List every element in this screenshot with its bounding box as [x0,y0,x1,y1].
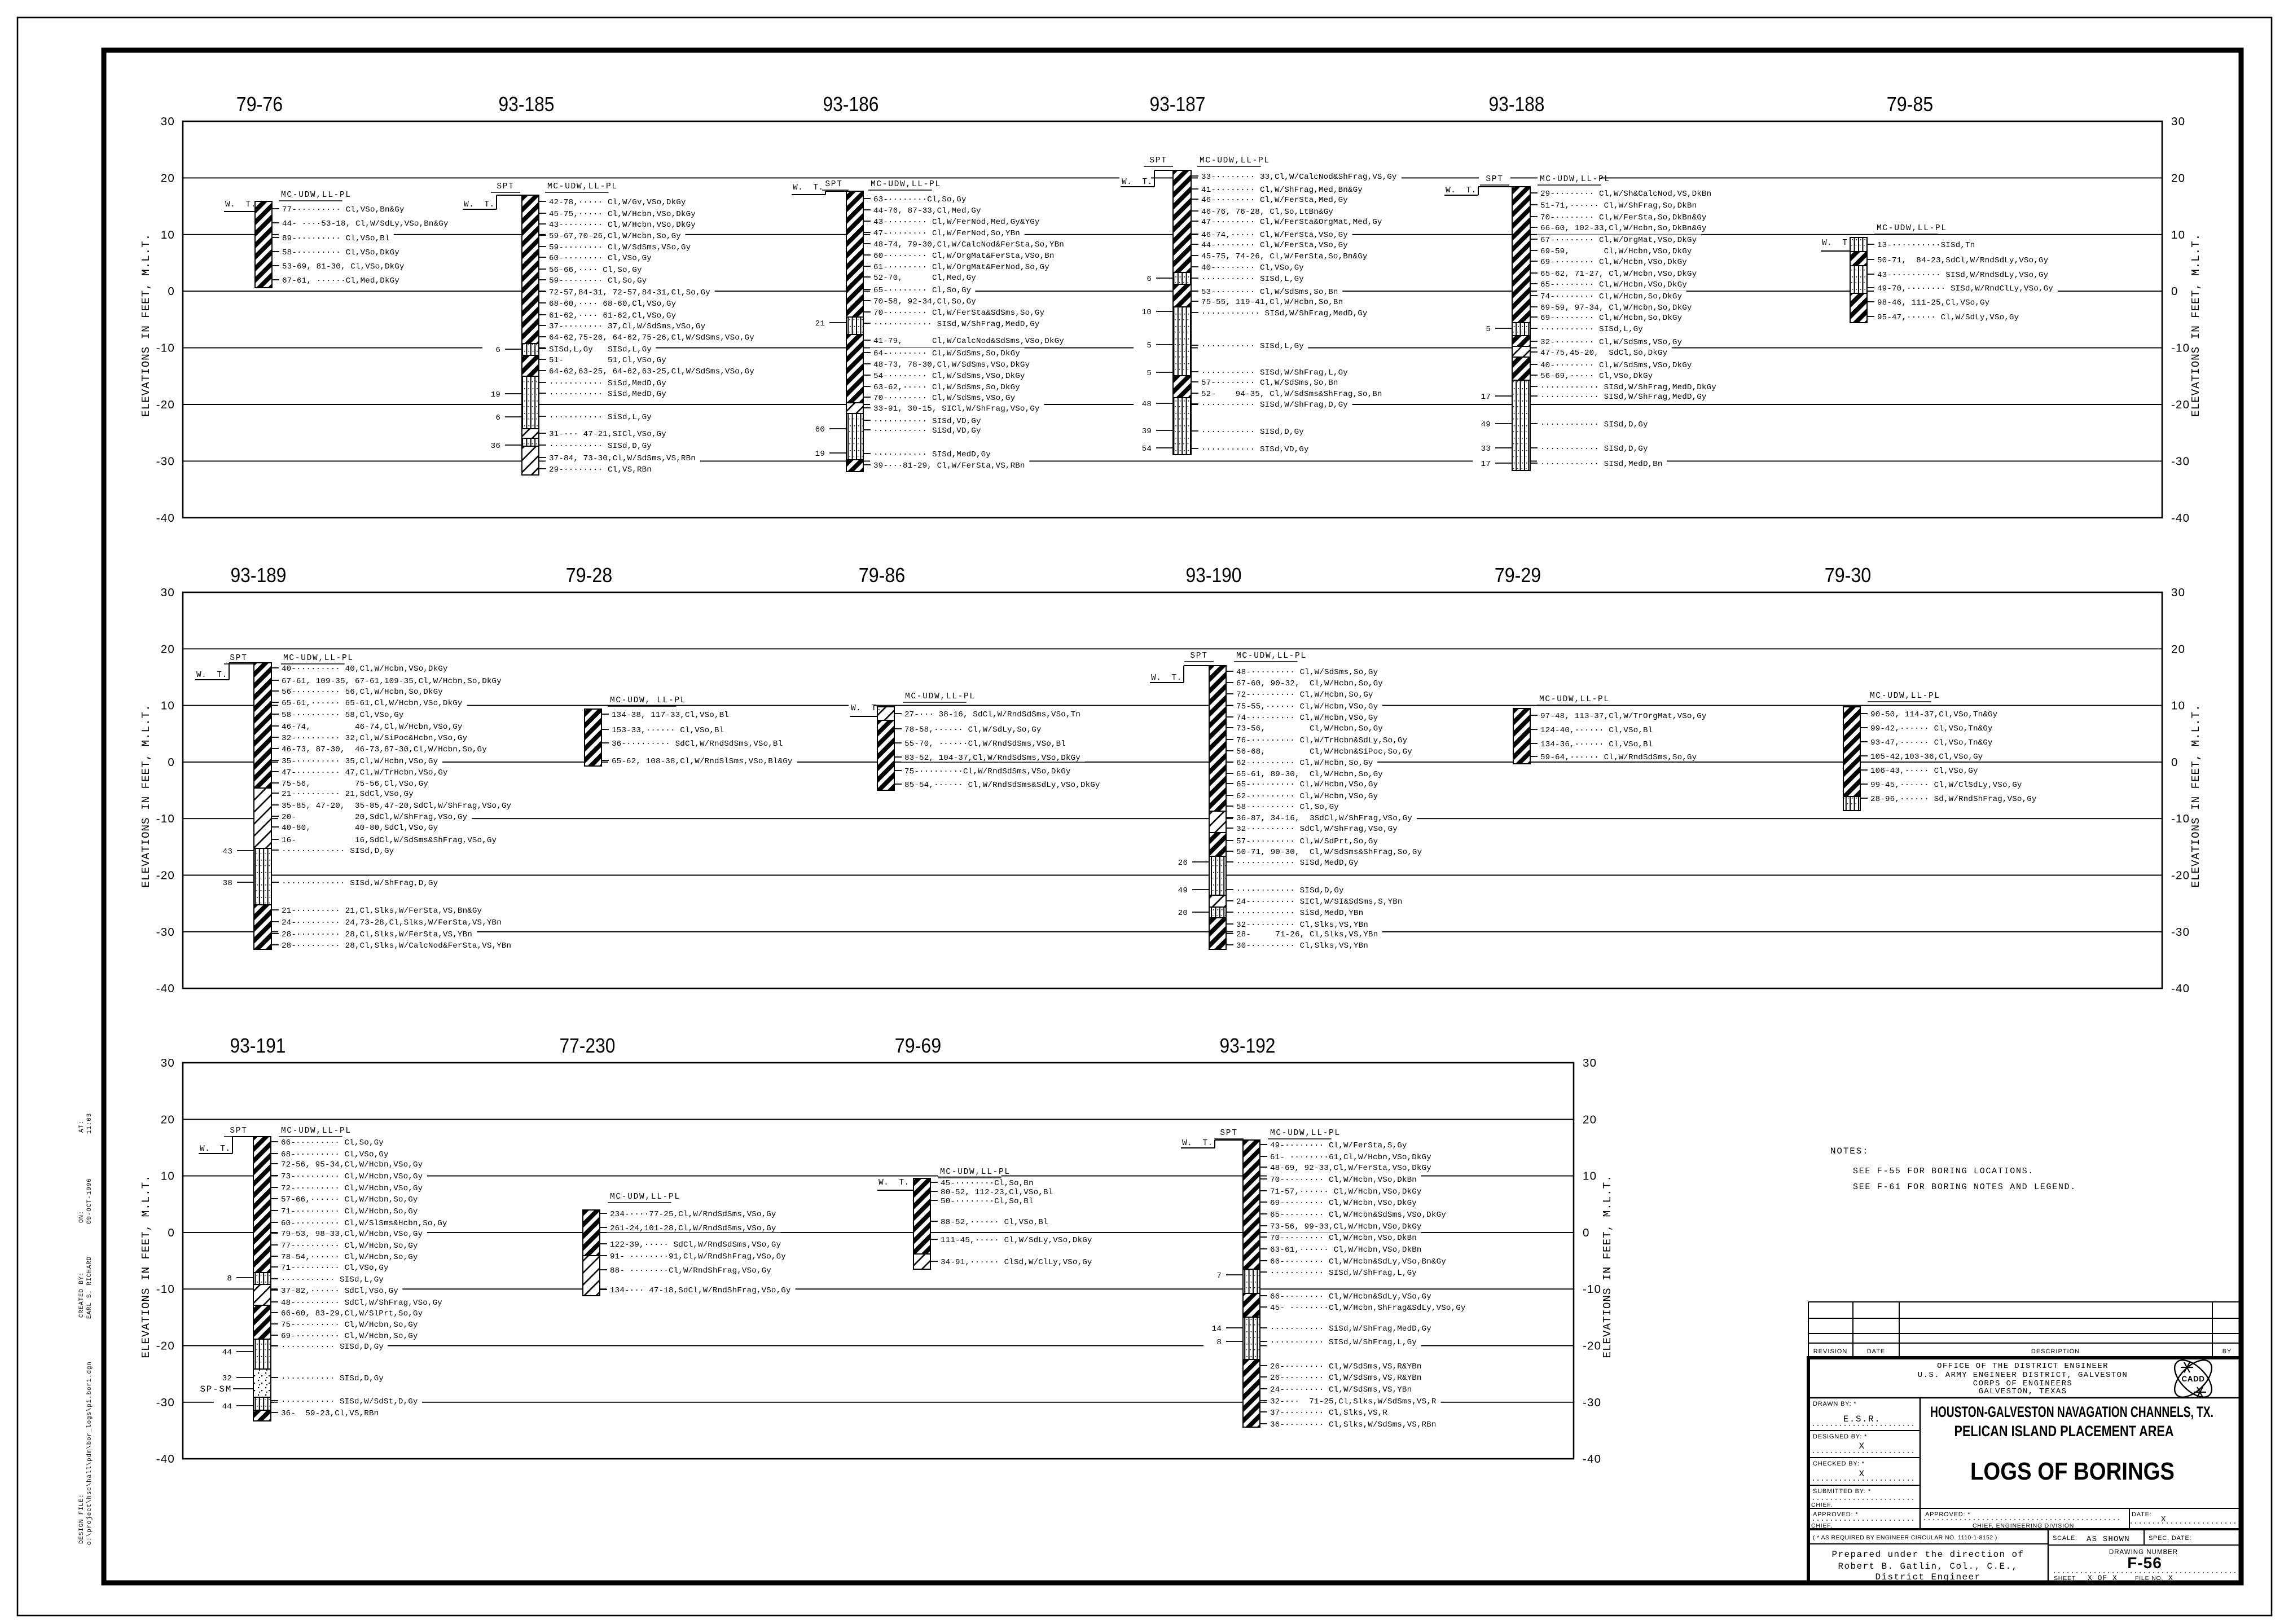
svg-text:-40: -40 [156,1453,175,1465]
svg-text:71-········· Cl,VSo,Gy: 71-········· Cl,VSo,Gy [281,1264,389,1273]
svg-text:············ SISd,D,Gy: ············ SISd,D,Gy [1540,420,1648,429]
svg-text:72-57,84-31, 72-57,84-31,Cl,So: 72-57,84-31, 72-57,84-31,Cl,So,Gy [549,288,710,297]
svg-text:DESIGNED BY: *: DESIGNED BY: * [1813,1433,1867,1440]
svg-text:CHIEF, ENGINEERING DIVISION: CHIEF, ENGINEERING DIVISION [1973,1522,2074,1529]
svg-text:122-39,····· SdCl,W/RndSdSms,V: 122-39,····· SdCl,W/RndSdSms,VSo,Gy [610,1240,781,1249]
svg-text:66-60, 102-33,Cl,W/Hcbn,So,DkB: 66-60, 102-33,Cl,W/Hcbn,So,DkBn&Gy [1540,224,1707,233]
svg-text:············ SISd,W/ShFrag,Med: ············ SISd,W/ShFrag,MedD,Gy [1201,309,1368,318]
svg-text:54-········ Cl,W/SdSms,VSo,DkG: 54-········ Cl,W/SdSms,VSo,DkGy [873,372,1025,381]
svg-text:CHIEF,: CHIEF, [1811,1502,1833,1508]
svg-text:93-185: 93-185 [499,93,555,116]
svg-text:33-········ 33,Cl,W/CalcNod&Sh: 33-········ 33,Cl,W/CalcNod&ShFrag,VS,Gy [1201,173,1397,182]
svg-text:47-75,45-20, SdCl,So,DkGy: 47-75,45-20, SdCl,So,DkGy [1540,349,1668,358]
svg-text:( * AS REQUIRED BY ENGINEER CI: ( * AS REQUIRED BY ENGINEER CIRCULAR NO.… [1813,1534,1997,1541]
svg-text:CHIEF,: CHIEF, [1811,1522,1833,1529]
svg-text:OFFICE OF THE DISTRICT ENGINEE: OFFICE OF THE DISTRICT ENGINEER [1937,1362,2109,1371]
svg-text:59-········ Cl,So,Gy: 59-········ Cl,So,Gy [549,276,647,285]
svg-text:73-56, Cl,W/Hcbn,So,Gy: 73-56, Cl,W/Hcbn,So,Gy [1236,724,1383,733]
svg-text:20: 20 [2171,642,2185,655]
svg-text:34-91,······ ClSd,W/ClLy,VSo,G: 34-91,······ ClSd,W/ClLy,VSo,Gy [941,1258,1092,1267]
svg-text:W. T.: W. T. [1822,239,1853,248]
svg-text:16- 16,SdCl,W/SdSms: 16- 16,SdCl,W/SdSms&ShFrag,VSo,Gy [282,836,497,845]
svg-text:SPT: SPT [1149,156,1167,165]
svg-text:-20: -20 [156,1340,175,1353]
svg-text:MC-UDW,LL-PL: MC-UDW,LL-PL [281,1126,352,1136]
svg-text:88-52,······ Cl,VSo,Bl: 88-52,······ Cl,VSo,Bl [941,1218,1048,1227]
svg-text:HOUSTON-GALVESTON NAVAGATION: HOUSTON-GALVESTON NAVAGATION CHANNELS, T… [1930,1403,2213,1420]
svg-text:57-66,······ Cl,W/Hcbn,So,Gy: 57-66,······ Cl,W/Hcbn,So,Gy [281,1195,418,1204]
svg-text:63-········Cl,So,Gy: 63-········Cl,So,Gy [873,195,967,204]
svg-text:47-········ Cl,W/FerNod,So,YBn: 47-········ Cl,W/FerNod,So,YBn [873,229,1020,238]
svg-text:30: 30 [161,1057,175,1070]
svg-text:74-········· Cl,W/Hcbn,VSo,Gy: 74-········· Cl,W/Hcbn,VSo,Gy [1236,714,1378,723]
svg-text:············· SISd,W/ShFrag,D,: ············· SISd,W/ShFrag,D,Gy [282,879,438,888]
svg-text:··········· SISd,VD,Gy: ··········· SISd,VD,Gy [873,417,981,426]
svg-text:37-········ 37,Cl,W/SdSms,VSo,: 37-········ 37,Cl,W/SdSms,VSo,Gy [549,322,706,331]
svg-text:40-········ Cl,VSo,Gy: 40-········ Cl,VSo,Gy [1201,263,1304,272]
svg-text:93-186: 93-186 [823,93,879,116]
svg-text:21-········· 21,SdCl,VSo,Gy: 21-········· 21,SdCl,VSo,Gy [282,790,414,799]
svg-text:77-········· Cl,VSo,Bn&Gy: 77-········· Cl,VSo,Bn&Gy [282,205,405,214]
svg-text:············ SISd,MedD,Gy: ············ SISd,MedD,Gy [1236,859,1359,868]
svg-text:36-········ Cl,Slks,W/SdSms,VS: 36-········ Cl,Slks,W/SdSms,VS,RBn [1270,1420,1437,1429]
svg-text:36: 36 [491,442,500,451]
svg-text:64-········ Cl,W/SdSms,So,DkGy: 64-········ Cl,W/SdSms,So,DkGy [873,349,1020,358]
svg-text:60: 60 [815,425,825,434]
svg-text:45-75,····· Cl,W/Hcbn,VSo,DkGy: 45-75,····· Cl,W/Hcbn,VSo,DkGy [549,210,696,219]
svg-text:27-··· 38-16, SdCl,W/RndSdSms,: 27-··· 38-16, SdCl,W/RndSdSms,VSo,Tn [904,710,1080,719]
svg-text:··········· SISd,W/SdSt,D,Gy: ··········· SISd,W/SdSt,D,Gy [281,1397,418,1406]
svg-text:SP-SM: SP-SM [200,1384,232,1394]
svg-text:50-········Cl,So,Bl: 50-········Cl,So,Bl [941,1197,1034,1206]
svg-text:MC-UDW,LL-PL: MC-UDW,LL-PL [610,1192,680,1202]
svg-text:134-··· 47-18,SdCl,W/RndShFrag: 134-··· 47-18,SdCl,W/RndShFrag,VSo,Gy [610,1286,791,1295]
svg-text:44-76, 87-33,Cl,Med,Gy: 44-76, 87-33,Cl,Med,Gy [873,206,981,215]
svg-text:AS SHOWN: AS SHOWN [2087,1535,2130,1544]
svg-text:MC-UDW, LL-PL: MC-UDW, LL-PL [610,696,686,705]
svg-text:67-········ Cl,W/OrgMat,VSo,Dk: 67-········ Cl,W/OrgMat,VSo,DkGy [1540,236,1697,245]
svg-text:··········· SISd,VD,Gy: ··········· SISd,VD,Gy [1201,445,1309,454]
svg-text:SPT: SPT [1486,175,1503,184]
svg-text:69-········· Cl,W/Hcbn,So,Gy: 69-········· Cl,W/Hcbn,So,Gy [281,1332,418,1341]
svg-text:70-········ Cl,W/Hcbn,VSo,DkBn: 70-········ Cl,W/Hcbn,VSo,DkBn [1270,1176,1417,1185]
svg-text:30: 30 [161,115,175,128]
svg-text:65-········ Cl,W/Hcbn,VSo,DkGy: 65-········ Cl,W/Hcbn,VSo,DkGy [1540,280,1687,289]
svg-text:SPEC. DATE:: SPEC. DATE: [2149,1535,2191,1542]
svg-text:41-········ Cl,W/ShFrag,Med,Bn: 41-········ Cl,W/ShFrag,Med,Bn&Gy [1201,186,1363,195]
svg-text:-30: -30 [2171,926,2190,939]
svg-text:-10: -10 [156,342,175,355]
svg-text:51- 51,Cl,VSo,Gy: 51- 51,Cl,VSo,Gy [549,356,666,365]
svg-text:MC-UDW,LL-PL: MC-UDW,LL-PL [1870,692,1940,701]
svg-text:65-62, 71-27, Cl,W/Hcbn,VSo,Dk: 65-62, 71-27, Cl,W/Hcbn,VSo,DkGy [1540,270,1697,279]
svg-text:63-61,······ Cl,W/Hcbn,VSo,DkB: 63-61,······ Cl,W/Hcbn,VSo,DkBn [1270,1245,1422,1255]
svg-text:··········· SiSd,MedD,Gy: ··········· SiSd,MedD,Gy [549,379,666,388]
svg-text:10: 10 [1142,308,1152,317]
svg-text:············ SISd,MedD,Bn: ············ SISd,MedD,Bn [1540,460,1663,469]
svg-text:91- ········91,Cl,W/RndShFrag,: 91- ········91,Cl,W/RndShFrag,VSo,Gy [610,1252,786,1261]
svg-text:17: 17 [1481,393,1491,402]
svg-text:124-40,······ Cl,VSo,Bl: 124-40,······ Cl,VSo,Bl [1540,726,1653,735]
svg-text:79-85: 79-85 [1887,93,1934,116]
svg-text:21: 21 [815,319,825,328]
svg-text:10: 10 [2171,228,2185,241]
svg-text:234-····77-25,Cl,W/RndSdSms,VS: 234-····77-25,Cl,W/RndSdSms,VSo,Gy [610,1210,776,1219]
svg-text:DRAWN BY: *: DRAWN BY: * [1813,1401,1856,1407]
svg-text:47-········· 47,Cl,W/TrHcbn,VS: 47-········· 47,Cl,W/TrHcbn,VSo,Gy [282,768,448,777]
svg-text:X: X [2161,1515,2166,1524]
svg-text:0: 0 [2171,756,2178,769]
svg-text:50-71, 84-23,SdCl,W/RndSdLy,V: 50-71, 84-23,SdCl,W/RndSdLy,VSo,Gy [1877,256,2049,265]
svg-text:20: 20 [161,171,175,184]
svg-text:72-········· Cl,W/Hcbn,So,Gy: 72-········· Cl,W/Hcbn,So,Gy [1236,690,1373,699]
svg-text:60-········ Cl,VSo,Gy: 60-········ Cl,VSo,Gy [549,254,652,263]
svg-text:65-········· Cl,W/Hcbn,VSo,Gy: 65-········· Cl,W/Hcbn,VSo,Gy [1236,780,1378,789]
svg-text:X: X [1859,1469,1865,1479]
svg-text:74-········ Cl,W/Hcbn,So,DkGy: 74-········ Cl,W/Hcbn,So,DkGy [1540,292,1683,301]
svg-text:79-86: 79-86 [859,564,906,587]
svg-text:SEE F-55 FOR BORING LOCATIONS.: SEE F-55 FOR BORING LOCATIONS. [1853,1167,2034,1176]
svg-text:NOTES:: NOTES: [1830,1146,1869,1156]
svg-text:42-78,····· Cl,W/Gv,VSo,DkGy: 42-78,····· Cl,W/Gv,VSo,DkGy [549,198,686,207]
svg-text:CREATED BY:: CREATED BY: [78,1272,85,1318]
svg-text:99-45,······ Cl,W/ClSdLy,VSo,G: 99-45,······ Cl,W/ClSdLy,VSo,Gy [1870,781,2022,790]
svg-text:DESCRIPTION: DESCRIPTION [2031,1348,2080,1355]
svg-text:-30: -30 [2171,455,2190,468]
svg-text:10: 10 [161,1170,175,1183]
svg-text:61-········ Cl,W/OrgMat&FerNod: 61-········ Cl,W/OrgMat&FerNod,So,Gy [873,263,1049,272]
svg-text:78-54,······ Cl,W/Hcbn,So,Gy: 78-54,······ Cl,W/Hcbn,So,Gy [281,1253,418,1262]
svg-text:21-········· 21,Cl,Slks,W/FerS: 21-········· 21,Cl,Slks,W/FerSta,VS,Bn&G… [282,906,482,916]
svg-text:73-········· Cl,W/Hcbn,VSo,Gy: 73-········· Cl,W/Hcbn,VSo,Gy [281,1172,423,1181]
svg-text:35-85, 47-20, 35-85,47-20,SdC: 35-85, 47-20, 35-85,47-20,SdCl,W/ShFrag,… [282,802,512,811]
svg-text:U.S. ARMY ENGINEER DISTRICT, G: U.S. ARMY ENGINEER DISTRICT, GALVESTON [1918,1371,2128,1380]
svg-text:48-74, 79-30,Cl,W/CalcNod&FerS: 48-74, 79-30,Cl,W/CalcNod&FerSta,So,YBn [873,240,1064,249]
svg-text:10: 10 [2171,699,2185,712]
svg-text:71-········· Cl,W/Hcbn,So,Gy: 71-········· Cl,W/Hcbn,So,Gy [281,1207,418,1216]
svg-text:58-········· 58,Cl,VSo,Gy: 58-········· 58,Cl,VSo,Gy [282,711,404,720]
svg-text:49-········ Cl,W/FerSta,S,Gy: 49-········ Cl,W/FerSta,S,Gy [1270,1141,1407,1150]
svg-text:··········· SiSd,W/ShFrag,MedD: ··········· SiSd,W/ShFrag,MedD,Gy [1270,1324,1431,1333]
svg-text:··········· SISd,D,Gy: ··········· SISd,D,Gy [1201,428,1304,437]
svg-text:66-60, 83-29,Cl,W/SlPrt,So,Gy: 66-60, 83-29,Cl,W/SlPrt,So,Gy [281,1309,423,1318]
svg-text:5: 5 [1147,341,1152,350]
svg-text:··········· SISd,D,Gy: ··········· SISd,D,Gy [549,442,652,451]
svg-text:56-········· 56,Cl,W/Hcbn,So,D: 56-········· 56,Cl,W/Hcbn,So,DkGy [282,688,443,697]
svg-text:49-70,········ SISd,W/RndClLy,: 49-70,········ SISd,W/RndClLy,VSo,Gy [1877,284,2053,293]
svg-text:············ SISd,W/ShFrag,Med: ············ SISd,W/ShFrag,MedD,DkGy [1540,383,1716,392]
svg-text:65-········ Cl,W/Hcbn&SdSms,VS: 65-········ Cl,W/Hcbn&SdSms,VSo,DkGy [1270,1211,1446,1220]
svg-text:-20: -20 [1583,1340,1601,1353]
svg-text:··········· SISd,W/ShFrag,L,Gy: ··········· SISd,W/ShFrag,L,Gy [1270,1269,1417,1278]
svg-text:29-········ Cl,VS,RBn: 29-········ Cl,VS,RBn [549,465,652,474]
svg-text:58-········· Cl,So,Gy: 58-········· Cl,So,Gy [1236,803,1339,812]
svg-text:59-64,······ Cl,W/RndSdSms,So,: 59-64,······ Cl,W/RndSdSms,So,Gy [1540,753,1697,762]
svg-text:ON:: ON: [78,1211,85,1223]
svg-text:66-········ Cl,W/Hcbn&SdLy,VSo: 66-········ Cl,W/Hcbn&SdLy,VSo,Gy [1270,1292,1431,1301]
svg-text:56-69,····· Cl,VSo,DkGy: 56-69,····· Cl,VSo,DkGy [1540,372,1653,381]
svg-text:············ SISd,W/ShFrag,Med: ············ SISd,W/ShFrag,MedD,Gy [873,320,1040,329]
svg-text:37-········ Cl,Slks,VS,R: 37-········ Cl,Slks,VS,R [1270,1409,1387,1418]
svg-text:-30: -30 [156,455,175,468]
svg-text:43-········ Cl,W/FerNod,Med,Gy: 43-········ Cl,W/FerNod,Med,Gy&YGy [873,218,1040,227]
svg-text:24-········· 24,73-28,Cl,Slks,: 24-········· 24,73-28,Cl,Slks,W/FerSta,V… [282,918,502,927]
svg-text:46-········ Cl,W/FerSta,Med,Gy: 46-········ Cl,W/FerSta,Med,Gy [1201,196,1348,205]
svg-text:75-56, 75-56,Cl,VSo,Gy: 75-56, 75-56,Cl,VSo,Gy [282,780,428,789]
svg-text:79-30: 79-30 [1825,564,1872,587]
svg-text:PELICAN ISLAND PLACEMENT AR: PELICAN ISLAND PLACEMENT AREA [1954,1423,2174,1440]
svg-text:14: 14 [1212,1324,1222,1333]
svg-text:30: 30 [2171,586,2185,599]
svg-text:36-········· SdCl,W/RndSdSms,V: 36-········· SdCl,W/RndSdSms,VSo,Bl [612,740,783,749]
svg-text:8: 8 [227,1274,232,1283]
svg-text:MC-UDW,LL-PL: MC-UDW,LL-PL [1540,175,1610,184]
svg-text:BY: BY [2222,1348,2232,1355]
svg-text:37-82,······ SdCl,VSo,Gy: 37-82,······ SdCl,VSo,Gy [281,1287,398,1296]
svg-text:64-62,63-25, 64-62,63-25,Cl,W/: 64-62,63-25, 64-62,63-25,Cl,W/SdSms,VSo,… [549,367,754,376]
svg-text:98-46, 111-25,Cl,VSo,Gy: 98-46, 111-25,Cl,VSo,Gy [1877,298,1990,307]
svg-text:-10: -10 [1583,1283,1601,1296]
svg-text:79-76: 79-76 [236,93,283,116]
svg-text:62-········· Cl,W/Hcbn,VSo,Gy: 62-········· Cl,W/Hcbn,VSo,Gy [1236,792,1378,801]
svg-text:72-········· Cl,W/Hcbn,VSo,Gy: 72-········· Cl,W/Hcbn,VSo,Gy [281,1184,423,1193]
svg-text:EARL S. RICHARD: EARL S. RICHARD [86,1256,93,1319]
svg-text:33: 33 [1481,444,1491,454]
svg-text:33-91, 30-15, SICl,W/ShFrag,VS: 33-91, 30-15, SICl,W/ShFrag,VSo,Gy [873,404,1040,413]
svg-text:32-··· 71-25,Cl,Slks,W/SdSms,: 32-··· 71-25,Cl,Slks,W/SdSms,VS,R [1270,1397,1437,1406]
svg-text:APPROVED: *: APPROVED: * [1925,1511,1970,1518]
svg-text:53-········ Cl,W/SdSms,So,Bn: 53-········ Cl,W/SdSms,So,Bn [1201,288,1338,297]
svg-text:51-71,······ Cl,W/ShFrag,So,Dk: 51-71,······ Cl,W/ShFrag,So,DkBn [1540,201,1697,210]
svg-text:85-54,······ Cl,W/RndSdSms&SdL: 85-54,······ Cl,W/RndSdSms&SdLy,VSo,DkGy [904,781,1100,790]
svg-text:32-········· Cl,Slks,VS,YBn: 32-········· Cl,Slks,VS,YBn [1236,921,1368,930]
svg-text:··········· SISd,W/ShFrag,L,Gy: ··········· SISd,W/ShFrag,L,Gy [1201,368,1348,377]
svg-text:53-69, 81-30, Cl,VSo,DkGy: 53-69, 81-30, Cl,VSo,DkGy [282,262,405,271]
svg-text:62-········· Cl,W/Hcbn,So,Gy: 62-········· Cl,W/Hcbn,So,Gy [1236,759,1373,768]
svg-text:90-50, 114-37,Cl,VSo,Tn&Gy: 90-50, 114-37,Cl,VSo,Tn&Gy [1870,710,1998,719]
svg-text:68-60,···· 68-60,Cl,VSo,Gy: 68-60,···· 68-60,Cl,VSo,Gy [549,300,677,309]
svg-text:46-73, 87-30, 46-73,87-30,Cl,: 46-73, 87-30, 46-73,87-30,Cl,W/Hcbn,So,G… [282,745,487,754]
svg-text:153-33,······ Cl,VSo,Bl: 153-33,······ Cl,VSo,Bl [612,726,724,735]
svg-text:48: 48 [1142,400,1152,409]
svg-text:ELEVATIONS IN FEET, M.L.T.: ELEVATIONS IN FEET, M.L.T. [140,1175,152,1358]
svg-text:ELEVATIONS IN FEET, M.L.T.: ELEVATIONS IN FEET, M.L.T. [2190,705,2202,888]
svg-text:············· SISd,D,Gy: ············· SISd,D,Gy [282,847,394,856]
svg-text:APPROVED: *: APPROVED: * [1813,1511,1858,1518]
svg-text:70-········ Cl,W/SdSms,VSo,Gy: 70-········ Cl,W/SdSms,VSo,Gy [873,394,1016,403]
svg-text:··········· SISd,D,Gy: ··········· SISd,D,Gy [281,1374,384,1383]
svg-text:69-········ Cl,W/Hcbn,So,DkGy: 69-········ Cl,W/Hcbn,So,DkGy [1540,314,1683,323]
svg-text:26-········ Cl,W/SdSms,VS,R&YB: 26-········ Cl,W/SdSms,VS,R&YBn [1270,1362,1422,1371]
svg-text:30: 30 [2171,115,2185,128]
svg-text:44-········ Cl,W/FerSta,VSo,Gy: 44-········ Cl,W/FerSta,VSo,Gy [1201,241,1348,250]
svg-text:72-56, 95-34,Cl,W/Hcbn,VSo,Gy: 72-56, 95-34,Cl,W/Hcbn,VSo,Gy [281,1160,423,1169]
svg-text:79-69: 79-69 [895,1034,942,1057]
svg-text:28- 71-26, Cl,Slks,VS,YBn: 28- 71-26, Cl,Slks,VS,YBn [1236,930,1378,939]
svg-text:-40: -40 [2171,982,2190,995]
svg-text:MC-UDW,LL-PL: MC-UDW,LL-PL [1539,695,1610,704]
svg-text:39: 39 [1142,427,1152,436]
svg-text:30: 30 [1583,1057,1597,1070]
svg-text:19: 19 [815,450,825,459]
svg-text:0: 0 [2171,285,2178,298]
svg-text:26-········ Cl,W/SdSms,VS,R&YB: 26-········ Cl,W/SdSms,VS,R&YBn [1270,1374,1422,1383]
svg-text:61- ········61,Cl,W/Hcbn,VSo,D: 61- ········61,Cl,W/Hcbn,VSo,DkGy [1270,1153,1431,1162]
svg-text:FILE NO.: FILE NO. [2135,1575,2163,1582]
svg-text:0: 0 [1583,1226,1590,1239]
svg-text:MC-UDW,LL-PL: MC-UDW,LL-PL [1236,652,1307,661]
svg-text:79-28: 79-28 [566,564,613,587]
svg-text:5: 5 [1147,369,1152,378]
svg-text:43-·········· SISd,W/RndSdLy,V: 43-·········· SISd,W/RndSdLy,VSo,Gy [1877,271,2049,280]
svg-text:MC-UDW,LL-PL: MC-UDW,LL-PL [871,180,941,189]
svg-text:32-········· SdCl,W/ShFrag,VSo: 32-········· SdCl,W/ShFrag,VSo,Gy [1236,825,1398,834]
svg-text:0: 0 [168,756,175,769]
svg-text:30: 30 [161,586,175,599]
svg-text:43-········ Cl,W/Hcbn,VSo,DkGy: 43-········ Cl,W/Hcbn,VSo,DkGy [549,221,696,230]
svg-text:57-········· Cl,W/SdPrt,So,Gy: 57-········· Cl,W/SdPrt,So,Gy [1236,837,1378,846]
svg-text:66-········· Cl,So,Gy: 66-········· Cl,So,Gy [281,1138,384,1147]
svg-text:Robert B. Gatlin, Col., C.E.,: Robert B. Gatlin, Col., C.E., [1838,1561,2018,1572]
svg-text:31-··· 47-21,SICl,VSo,Gy: 31-··· 47-21,SICl,VSo,Gy [549,430,666,439]
svg-text:-10: -10 [2171,812,2190,825]
svg-text:··········· SISd,W/ShFrag,L,Gy: ··········· SISd,W/ShFrag,L,Gy [1270,1338,1417,1347]
svg-text:44: 44 [222,1402,232,1411]
svg-text:65-61,······ 65-61,Cl,W/Hcbn,V: 65-61,······ 65-61,Cl,W/Hcbn,VSo,DkGy [282,699,463,708]
svg-text:71-57,······ Cl,W/Hcbn,VSo,DkG: 71-57,······ Cl,W/Hcbn,VSo,DkGy [1270,1187,1422,1196]
svg-text:W. T.: W. T. [200,1145,231,1154]
svg-text:-30: -30 [156,926,175,939]
svg-text:93-191: 93-191 [230,1034,286,1057]
svg-text:32-········ Cl,W/SdSms,VSo,Gy: 32-········ Cl,W/SdSms,VSo,Gy [1540,338,1683,347]
svg-text:20: 20 [161,642,175,655]
svg-text:W. T.: W. T. [1446,186,1477,195]
svg-text:65-61, 89-30, Cl,W/Hcbn,So,Gy: 65-61, 89-30, Cl,W/Hcbn,So,Gy [1236,770,1383,779]
svg-text:67-61, ······Cl,Med,DkGy: 67-61, ······Cl,Med,DkGy [282,276,399,285]
svg-text:76-········· Cl,W/TrHcbn&SdLy,: 76-········· Cl,W/TrHcbn&SdLy,So,Gy [1236,736,1408,745]
svg-text:97-48, 113-37,Cl,W/TrOrgMat,VS: 97-48, 113-37,Cl,W/TrOrgMat,VSo,Gy [1540,712,1707,721]
svg-text:66-········ Cl,W/Hcbn&SdLy,VSo: 66-········ Cl,W/Hcbn&SdLy,VSo,Bn&Gy [1270,1257,1446,1266]
svg-text:··········· SISd,L,Gy: ··········· SISd,L,Gy [1201,342,1304,351]
svg-text:48-69, 92-33,Cl,W/FerSta,VSo,D: 48-69, 92-33,Cl,W/FerSta,VSo,DkGy [1270,1164,1431,1173]
svg-text:75-55, 119-41,Cl,W/Hcbn,So,Bn: 75-55, 119-41,Cl,W/Hcbn,So,Bn [1201,298,1343,307]
svg-text:52- 94-35, Cl,W/SdSms&ShFra: 52- 94-35, Cl,W/SdSms&ShFrag,So,Bn [1201,390,1382,399]
svg-text:58-········· Cl,VSo,DkGy: 58-········· Cl,VSo,DkGy [282,248,399,257]
svg-text:134-36,······ Cl,VSo,Bl: 134-36,······ Cl,VSo,Bl [1540,740,1653,749]
svg-text:75-55,······ Cl,W/Hcbn,VSo,Gy: 75-55,······ Cl,W/Hcbn,VSo,Gy [1236,702,1378,711]
svg-text:··········· SISd,L,Gy: ··········· SISd,L,Gy [1201,275,1304,284]
svg-text:40-········· 40,Cl,W/Hcbn,VSo,: 40-········· 40,Cl,W/Hcbn,VSo,DkGy [282,664,448,674]
svg-text:W. T.: W. T. [196,671,227,680]
svg-text:43: 43 [223,847,232,856]
svg-text:88- ········Cl,W/RndShFrag,VSo: 88- ········Cl,W/RndShFrag,VSo,Gy [610,1266,771,1275]
svg-text:24-········ Cl,W/SdSms,VS,YBn: 24-········ Cl,W/SdSms,VS,YBn [1270,1385,1412,1394]
svg-text:SCALE:: SCALE: [2053,1535,2077,1542]
svg-text:CHECKED BY: *: CHECKED BY: * [1813,1460,1865,1467]
svg-text:48-········· Cl,W/SdSms,So,Gy: 48-········· Cl,W/SdSms,So,Gy [1236,668,1378,677]
svg-text:··········· SISd,L,Gy: ··········· SISd,L,Gy [281,1275,384,1284]
svg-text:50-71, 90-30, Cl,W/SdSms&ShFr: 50-71, 90-30, Cl,W/SdSms&ShFrag,So,Gy [1236,848,1422,857]
svg-text:X: X [1859,1441,1865,1451]
svg-text:56-66,···· Cl,So,Gy: 56-66,···· Cl,So,Gy [549,266,642,275]
svg-text:77-········· Cl,W/Hcbn,So,Gy: 77-········· Cl,W/Hcbn,So,Gy [281,1242,418,1251]
svg-text:30-········· Cl,Slks,VS,YBn: 30-········· Cl,Slks,VS,YBn [1236,941,1368,950]
svg-text:20: 20 [1583,1113,1597,1126]
svg-text:20: 20 [161,1113,175,1126]
svg-text:W. T.: W. T. [225,200,256,209]
svg-text:44: 44 [222,1348,232,1357]
svg-text:MC-UDW,LL-PL: MC-UDW,LL-PL [1270,1129,1341,1138]
svg-text:40-80, 40-80,SdCl,VSo,: 40-80, 40-80,SdCl,VSo,Gy [282,824,438,833]
svg-text:F-56: F-56 [2127,1554,2162,1572]
svg-text:DATE: DATE [1867,1348,1886,1355]
svg-text:20- 20,SdCl,W/ShFra: 20- 20,SdCl,W/ShFrag,VSo,Gy [282,813,468,822]
svg-text:89-········· Cl,VSo,Bl: 89-········· Cl,VSo,Bl [282,234,390,243]
svg-text:35-········· 35,Cl,W/Hcbn,VSo,: 35-········· 35,Cl,W/Hcbn,VSo,Gy [282,757,438,766]
svg-text:LOGS OF BORINGS: LOGS OF BORINGS [1970,1458,2175,1485]
svg-text:70-········ Cl,W/FerSta,So,DkB: 70-········ Cl,W/FerSta,So,DkBn&Gy [1540,213,1707,222]
svg-text:MC-UDW,LL-PL: MC-UDW,LL-PL [1877,224,1947,233]
svg-text:60-········· Cl,W/SlSms&Hcbn,S: 60-········· Cl,W/SlSms&Hcbn,So,Gy [281,1219,447,1228]
svg-text:20: 20 [1178,909,1188,918]
svg-text:-10: -10 [2171,342,2190,355]
svg-text:SEE F-61 FOR BORING NOTES AND: SEE F-61 FOR BORING NOTES AND LEGEND. [1853,1182,2076,1192]
svg-text:W. T.: W. T. [1182,1139,1213,1148]
svg-text:70-58, 92-34,Cl,So,Gy: 70-58, 92-34,Cl,So,Gy [873,297,976,306]
svg-text:5: 5 [1486,325,1491,334]
svg-text:13-··········SISd,Tn: 13-··········SISd,Tn [1877,241,1975,250]
svg-text:X: X [2168,1574,2173,1582]
svg-text:············ SISd,D,Gy: ············ SISd,D,Gy [1236,886,1344,895]
svg-text:41-79, Cl,W/CalcNod&SdSms: 41-79, Cl,W/CalcNod&SdSms,VSo,DkGy [873,337,1064,346]
svg-text:0: 0 [168,1226,175,1239]
svg-text:28-96,······ Sd,W/RndShFrag,VS: 28-96,······ Sd,W/RndShFrag,VSo,Gy [1870,795,2037,804]
svg-text:40-········ Cl,W/SdSms,VSo,DkG: 40-········ Cl,W/SdSms,VSo,DkGy [1540,361,1692,370]
svg-text:69-59, 97-34, Cl,W/Hcbn,So,DkG: 69-59, 97-34, Cl,W/Hcbn,So,DkGy [1540,303,1692,313]
svg-text:SISd,L,Gy SISd,L,Gy: SISd,L,Gy SISd,L,Gy [549,345,652,354]
svg-text:··········· SiSd,L,Gy: ··········· SiSd,L,Gy [549,413,652,422]
svg-text:83-52, 104-37,Cl,W/RndSdSms,VS: 83-52, 104-37,Cl,W/RndSdSms,VSo,DkGy [904,754,1080,763]
svg-text:106-43,····· Cl,VSo,Gy: 106-43,····· Cl,VSo,Gy [1870,767,1978,776]
svg-text:78-58,······ Cl,W/SdLy,So,Gy: 78-58,······ Cl,W/SdLy,So,Gy [904,725,1042,734]
svg-text:105-42,103-36,Cl,VSo,Gy: 105-42,103-36,Cl,VSo,Gy [1870,752,1983,762]
svg-text:8: 8 [1216,1338,1222,1347]
svg-text:11:03: 11:03 [86,1113,93,1134]
svg-text:261-24,101-28,Cl,W/RndSdSms,VS: 261-24,101-28,Cl,W/RndSdSms,VSo,Gy [610,1224,776,1233]
svg-text:MC-UDW,LL-PL: MC-UDW,LL-PL [283,654,354,663]
svg-text:93-190: 93-190 [1186,564,1242,587]
svg-text:············ SISd,D,Gy: ············ SISd,D,Gy [1540,444,1648,454]
svg-text:57-········ Cl,W/SdSms,So,Bn: 57-········ Cl,W/SdSms,So,Bn [1201,379,1338,388]
svg-text:6: 6 [495,346,500,355]
svg-text:32: 32 [222,1374,232,1383]
svg-text:93-189: 93-189 [231,564,287,587]
svg-text:45- ········Cl,W/Hcbn,ShFrag&S: 45- ········Cl,W/Hcbn,ShFrag&SdLy,VSo,Gy [1270,1304,1466,1313]
svg-text:46-74,····· Cl,W/FerSta,VSo,Gy: 46-74,····· Cl,W/FerSta,VSo,Gy [1201,231,1348,240]
svg-text:REVISION: REVISION [1813,1348,1848,1355]
svg-text:26: 26 [1178,859,1188,868]
svg-text:W. T.: W. T. [793,183,824,192]
svg-text:-20: -20 [156,398,175,411]
svg-text:79-53, 98-33,Cl,W/Hcbn,VSo,Gy: 79-53, 98-33,Cl,W/Hcbn,VSo,Gy [281,1230,423,1239]
svg-text:70-········ Cl,W/FerSta&SdSms,: 70-········ Cl,W/FerSta&SdSms,So,Gy [873,309,1045,318]
svg-text:36-87, 34-16, 3SdCl,W/ShFrag,: 36-87, 34-16, 3SdCl,W/ShFrag,VSo,Gy [1236,814,1412,823]
svg-text:SPT: SPT [1190,652,1207,661]
svg-text:··········· SISd,D,Gy: ··········· SISd,D,Gy [281,1343,384,1352]
svg-text:··········· SiSd,VD,Gy: ··········· SiSd,VD,Gy [873,426,981,435]
svg-text:93-188: 93-188 [1489,93,1545,116]
svg-text:55-70, ······Cl,W/RndSdSms,VSo: 55-70, ······Cl,W/RndSdSms,VSo,Bl [904,740,1066,749]
